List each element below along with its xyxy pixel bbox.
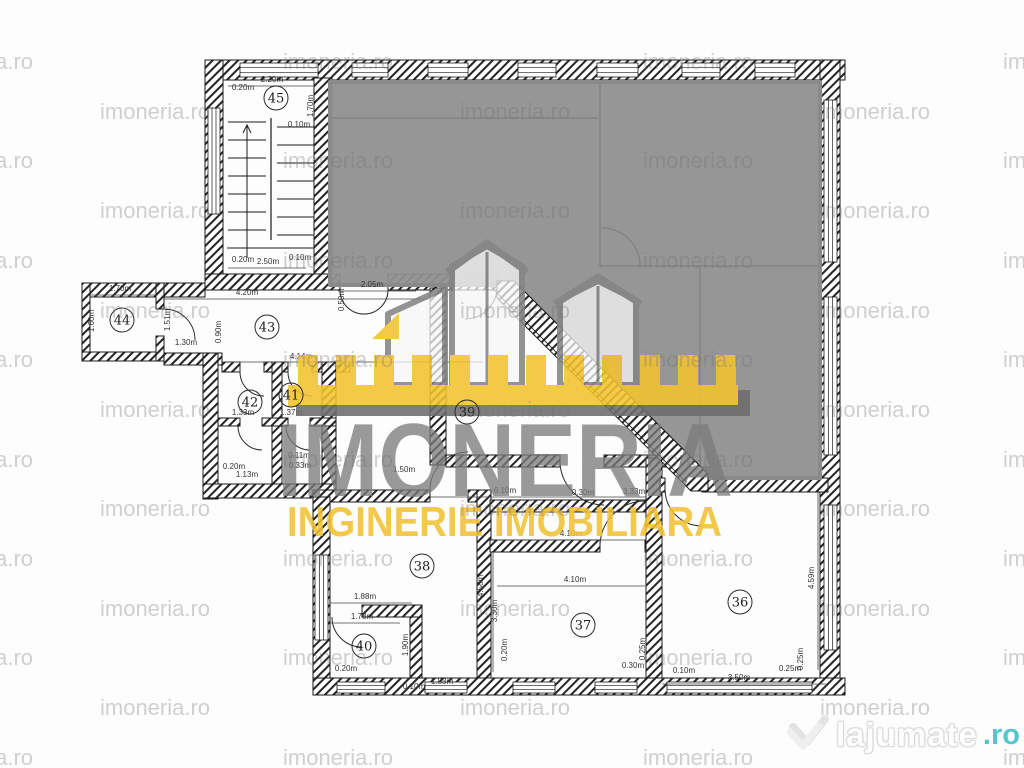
- window: [513, 682, 555, 693]
- window: [518, 63, 556, 77]
- wall: [410, 617, 422, 678]
- window: [597, 63, 638, 77]
- dimension-label: 0.20m: [335, 664, 358, 673]
- dimension-label: 1.60m: [87, 310, 96, 333]
- room-number: 41: [283, 389, 300, 404]
- dimension-label: 3.50m: [728, 673, 751, 682]
- door-arc: [364, 290, 388, 314]
- window: [682, 63, 720, 77]
- dimension-label: 0.10m: [673, 666, 696, 675]
- dimension-label: 0.90m: [214, 321, 223, 344]
- lajumate-wordmark: lajumate: [836, 716, 978, 754]
- dimension-label: 1.13m: [236, 470, 259, 479]
- room-number: 42: [242, 396, 259, 411]
- window: [824, 100, 837, 262]
- dimension-label: 4.10m: [564, 575, 587, 584]
- dimension-label: 0.25m: [638, 638, 647, 661]
- dimension-label: 4.20m: [236, 288, 259, 297]
- dimension-label: 1.51m: [163, 309, 172, 332]
- room-number: 45: [268, 92, 285, 107]
- room-number: 44: [114, 314, 131, 329]
- window: [352, 63, 388, 77]
- dimension-label: 0.10m: [403, 682, 426, 691]
- dimension-label: 2.50m: [257, 257, 280, 266]
- dimension-label: 0.10m: [288, 120, 311, 129]
- window: [755, 63, 795, 77]
- wall: [156, 336, 164, 361]
- staircase: [227, 118, 314, 258]
- room-number: 38: [414, 560, 431, 575]
- dimension-label: 0.10m: [289, 253, 312, 262]
- floor-plan-svg: 0.20m2.20m0.10m1.70m0.20m2.50m0.10m4.20m…: [0, 0, 1024, 768]
- wall: [205, 274, 340, 290]
- lajumate-logo: lajumate .ro: [786, 714, 1020, 756]
- dimension-label: 0.50m: [337, 289, 346, 312]
- dimension-label: 1.78m: [351, 612, 374, 621]
- logo-tagline: INGINERIE IMOBILIARA: [287, 498, 722, 545]
- dimension-label: 1.30m: [175, 338, 198, 347]
- window: [315, 555, 328, 640]
- dimension-label: 1.88m: [354, 592, 377, 601]
- room-number: 37: [575, 619, 592, 634]
- door-arc: [238, 426, 262, 450]
- window: [428, 63, 468, 77]
- lajumate-tld: .ro: [983, 719, 1020, 752]
- floorplan-image: 0.20m2.20m0.10m1.70m0.20m2.50m0.10m4.20m…: [0, 0, 1024, 768]
- wall: [203, 353, 218, 499]
- room-number: 43: [259, 321, 276, 336]
- room-number: 36: [732, 596, 749, 611]
- wall: [82, 352, 164, 361]
- dimension-label: 0.25m: [796, 648, 805, 671]
- dimension-label: 0.20m: [500, 639, 509, 662]
- dimension-label: 2.20m: [261, 75, 284, 84]
- dimension-label: 1.70m: [109, 284, 132, 293]
- window: [824, 297, 837, 455]
- window: [595, 682, 637, 693]
- wall: [222, 362, 240, 372]
- dimension-label: 1.90m: [401, 634, 410, 657]
- window: [208, 108, 220, 214]
- dimension-label: 1.83m: [431, 677, 454, 686]
- wall: [156, 283, 164, 309]
- window: [337, 682, 385, 693]
- dimension-label: 0.20m: [232, 83, 255, 92]
- dimension-label: 0.20m: [232, 255, 255, 264]
- room-number: 40: [356, 640, 373, 655]
- wall: [218, 418, 240, 426]
- dimension-label: 0.30m: [622, 661, 645, 670]
- dimension-label: 2.05m: [361, 280, 384, 289]
- dimension-label: 1.70m: [306, 95, 315, 118]
- room-number: 39: [459, 406, 476, 421]
- dimension-label: 4.58m: [476, 575, 485, 598]
- dimension-label: 4.59m: [807, 567, 816, 590]
- window: [824, 505, 837, 650]
- dimension-label: 3.30m: [490, 600, 499, 623]
- lajumate-heart-icon: [786, 714, 832, 756]
